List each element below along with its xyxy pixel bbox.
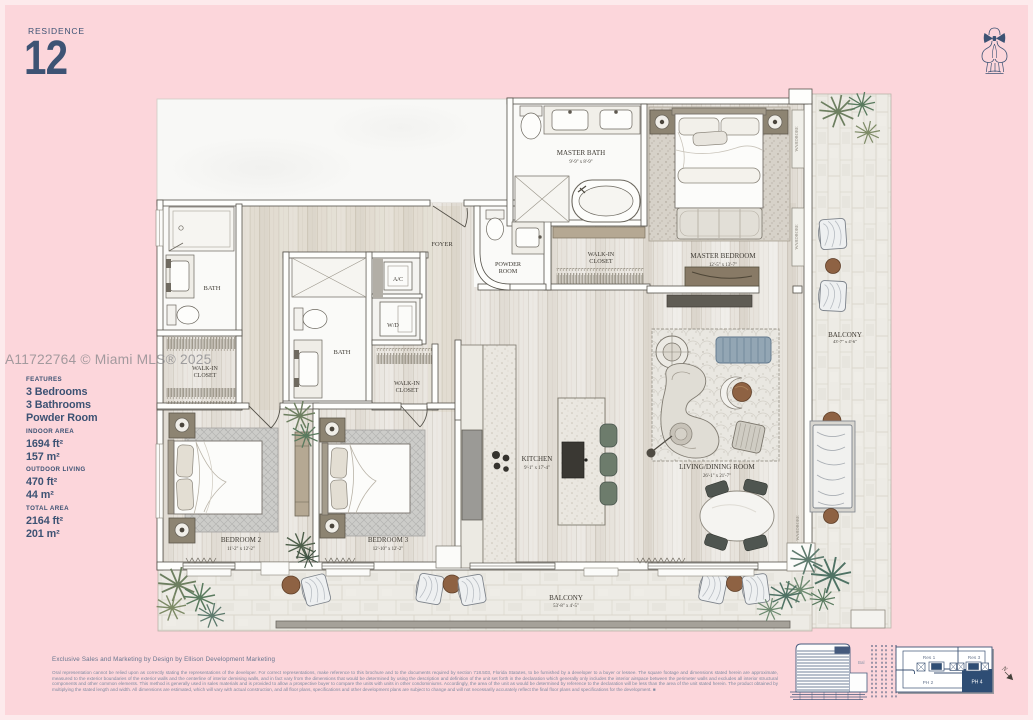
svg-text:9'-1" x 17'-4": 9'-1" x 17'-4" bbox=[524, 466, 550, 471]
svg-text:WALK-IN: WALK-IN bbox=[394, 381, 420, 387]
svg-text:N: N bbox=[1000, 665, 1009, 674]
svg-text:PH 2: PH 2 bbox=[923, 680, 934, 686]
svg-text:MASTER BEDROOM: MASTER BEDROOM bbox=[690, 252, 756, 260]
svg-text:9'-9" x 8'-9": 9'-9" x 8'-9" bbox=[569, 160, 592, 165]
svg-text:W/D: W/D bbox=[387, 323, 399, 329]
svg-text:PH 4: PH 4 bbox=[971, 680, 982, 686]
svg-text:BATH: BATH bbox=[334, 349, 351, 356]
svg-text:Res 3: Res 3 bbox=[968, 655, 981, 661]
svg-text:CLOSET: CLOSET bbox=[194, 373, 217, 379]
svg-text:LIVING/DINING ROOM: LIVING/DINING ROOM bbox=[679, 463, 755, 471]
svg-text:43'-7" x 4'-6": 43'-7" x 4'-6" bbox=[833, 339, 857, 344]
svg-text:53'-8" x 4'-5": 53'-8" x 4'-5" bbox=[553, 604, 579, 609]
svg-text:BEDROOM 3: BEDROOM 3 bbox=[368, 536, 409, 544]
svg-text:12'-5" x 13'-7": 12'-5" x 13'-7" bbox=[709, 263, 737, 268]
svg-text:WARDROBE: WARDROBE bbox=[794, 224, 799, 250]
svg-text:BALCONY: BALCONY bbox=[549, 594, 583, 602]
svg-text:12'-10" x 12'-2": 12'-10" x 12'-2" bbox=[373, 547, 403, 552]
svg-text:Bal: Bal bbox=[858, 660, 865, 665]
svg-text:Res 1: Res 1 bbox=[923, 655, 936, 661]
svg-text:BEDROOM 2: BEDROOM 2 bbox=[221, 536, 262, 544]
svg-text:POWDER: POWDER bbox=[495, 261, 522, 268]
svg-text:BATH: BATH bbox=[204, 285, 221, 292]
svg-text:KITCHEN: KITCHEN bbox=[522, 455, 553, 463]
svg-text:26'-1" x 21'-7": 26'-1" x 21'-7" bbox=[703, 474, 731, 479]
svg-text:BALCONY: BALCONY bbox=[828, 331, 862, 339]
svg-text:A/C: A/C bbox=[393, 277, 403, 283]
svg-text:ROOM: ROOM bbox=[499, 268, 518, 275]
svg-text:WALK-IN: WALK-IN bbox=[588, 251, 615, 258]
svg-text:WARDROBE: WARDROBE bbox=[794, 126, 799, 152]
svg-text:CLOSET: CLOSET bbox=[589, 258, 613, 265]
svg-text:11'-2" x 12'-2": 11'-2" x 12'-2" bbox=[227, 547, 255, 552]
svg-text:MASTER BATH: MASTER BATH bbox=[557, 149, 605, 157]
svg-text:CLOSET: CLOSET bbox=[396, 388, 419, 394]
svg-text:WARDROBE: WARDROBE bbox=[795, 515, 800, 541]
